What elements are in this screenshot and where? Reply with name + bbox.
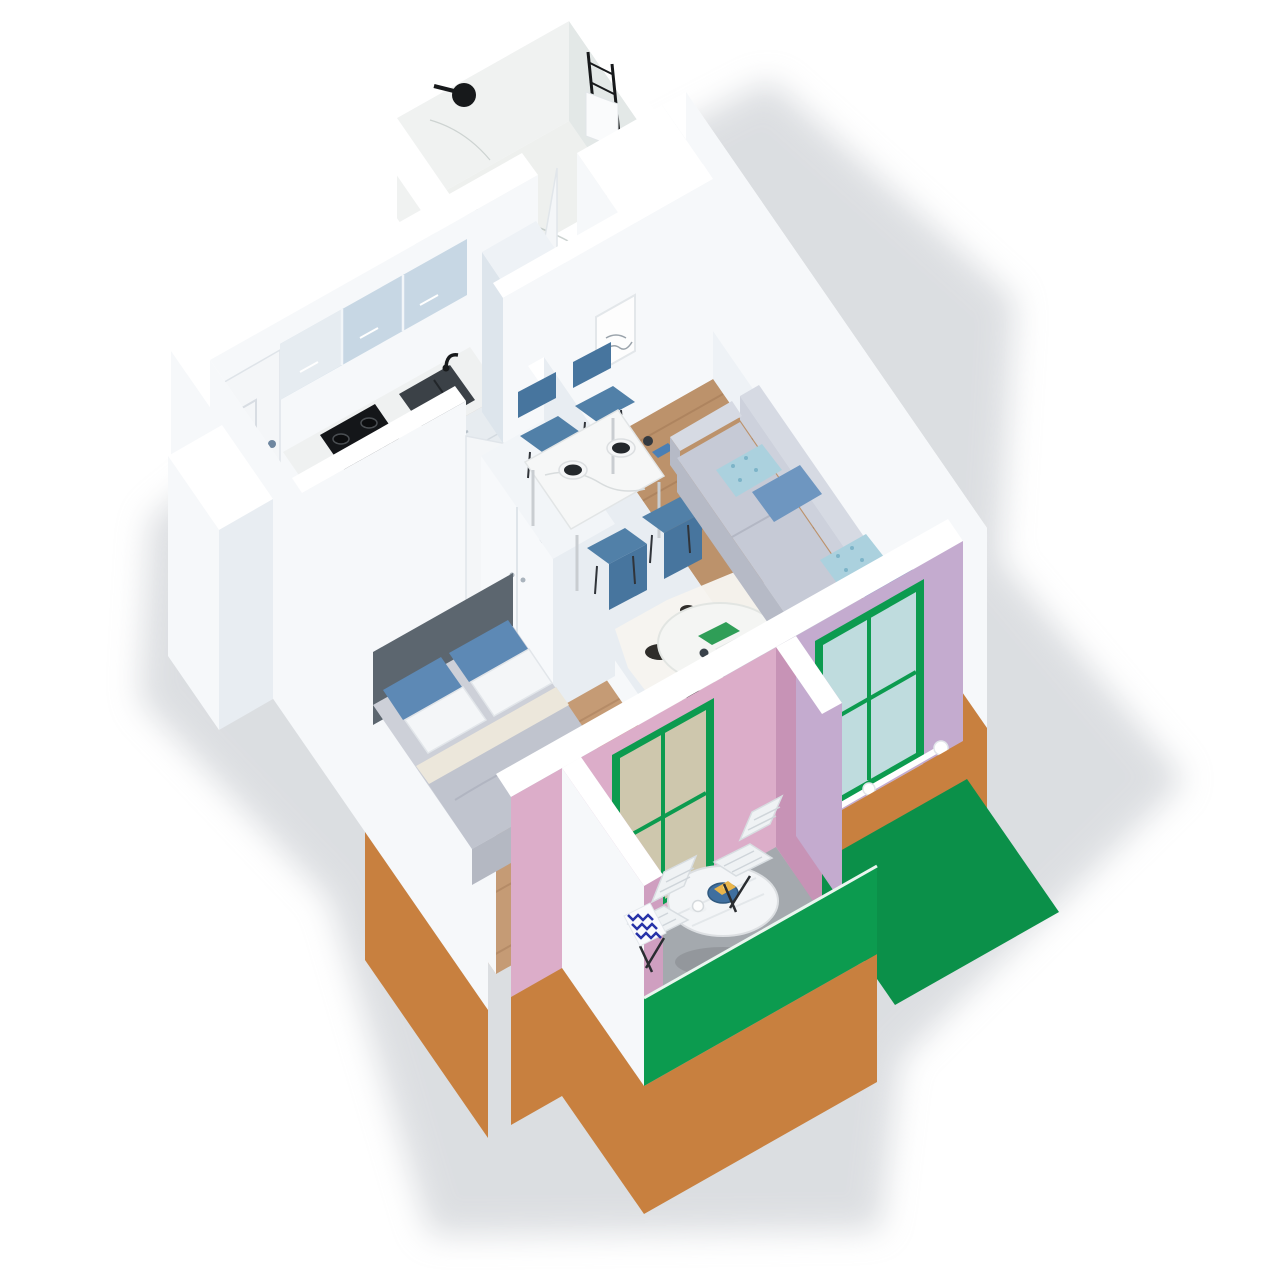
pillow-dot [744, 456, 748, 460]
burner [361, 418, 377, 428]
vestibule-south [219, 499, 273, 730]
pillow-dot [731, 464, 735, 468]
pillow-dot [754, 468, 758, 472]
shower-head [452, 83, 476, 107]
floorplan-3d-render [0, 0, 1280, 1280]
pillow-dot [860, 558, 864, 562]
pillow-dot [836, 554, 840, 558]
table-plate-tray [564, 465, 582, 476]
wardrobe-knob [521, 578, 526, 583]
scene-layer [140, 0, 1185, 1235]
burner [333, 434, 349, 444]
pillow-dot [850, 546, 854, 550]
table-plate-tray [612, 443, 630, 454]
pillow-dot [738, 478, 742, 482]
coffee-cup [693, 901, 704, 912]
pillow-dot [844, 568, 848, 572]
floorplan-svg [0, 0, 1280, 1280]
table-vase [643, 436, 653, 446]
